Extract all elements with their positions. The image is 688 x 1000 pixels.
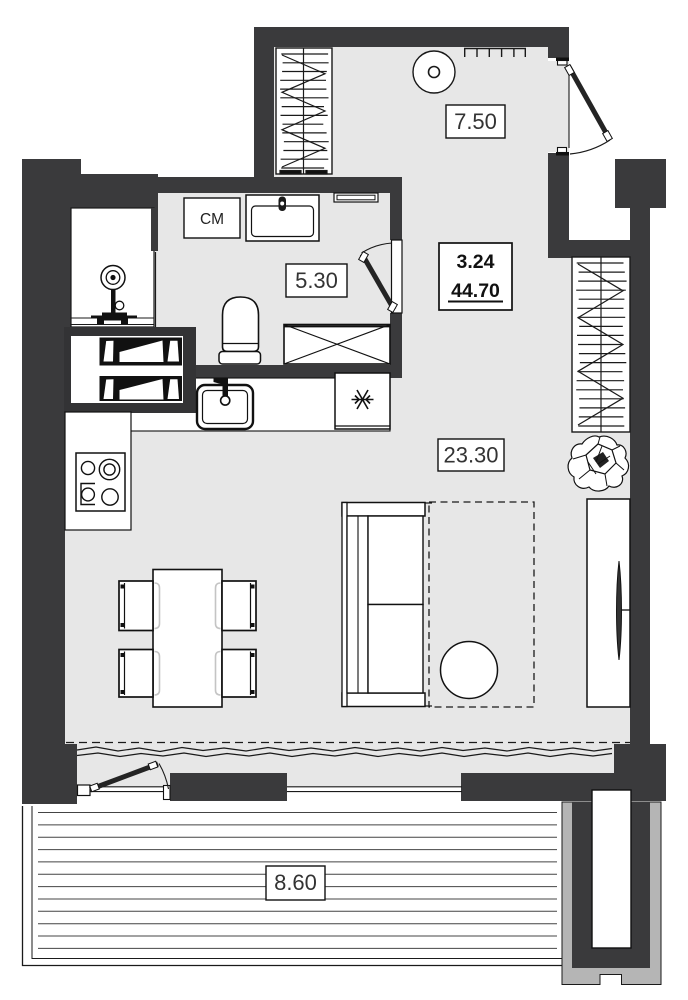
svg-text:7.50: 7.50	[454, 109, 497, 134]
svg-text:3.24: 3.24	[457, 251, 495, 273]
svg-text:44.70: 44.70	[451, 280, 500, 302]
svg-text:23.30: 23.30	[443, 443, 498, 468]
svg-text:CM: CM	[200, 211, 224, 228]
svg-text:5.30: 5.30	[295, 268, 338, 293]
svg-text:8.60: 8.60	[274, 870, 317, 895]
